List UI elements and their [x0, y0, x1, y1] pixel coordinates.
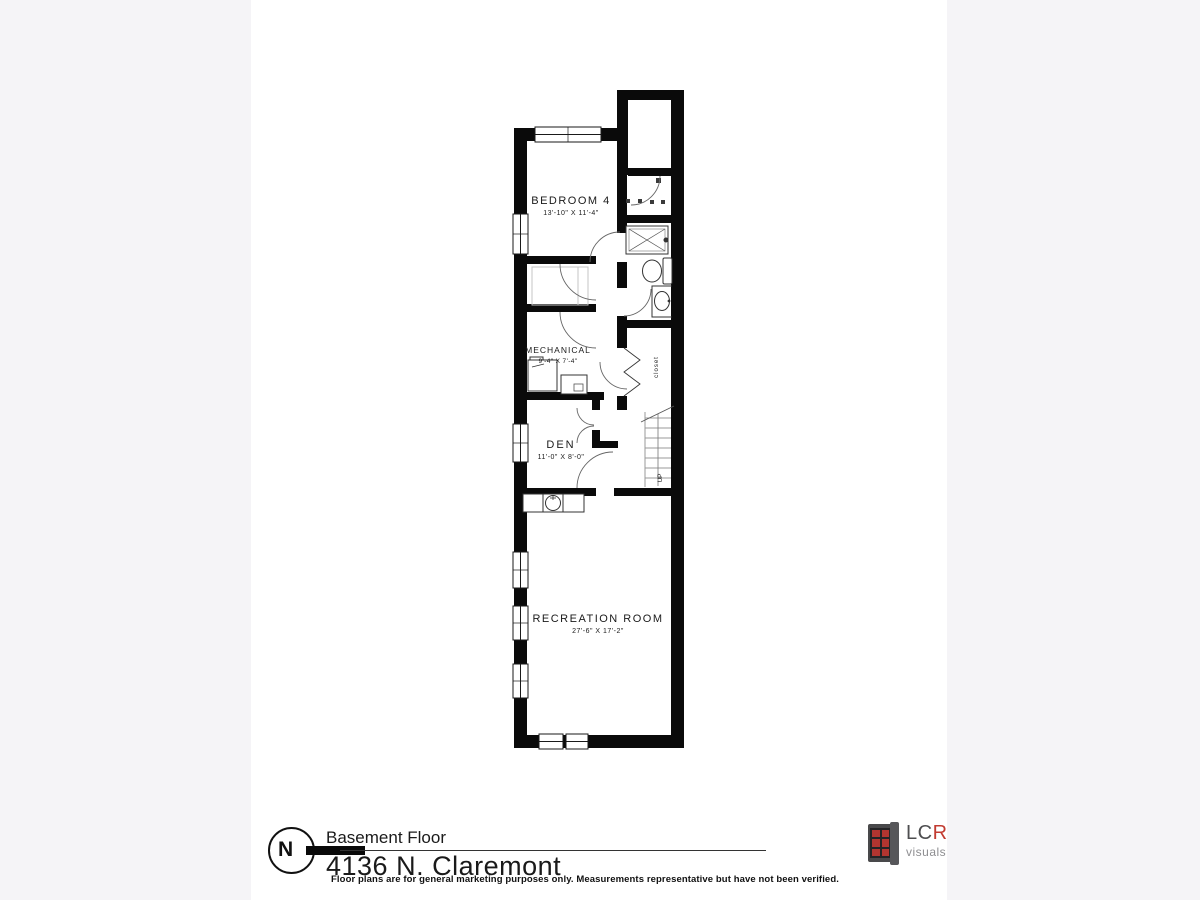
walls [514, 90, 684, 748]
window-left-rec-1 [513, 552, 528, 588]
window-left-rec-3 [513, 664, 528, 698]
left-margin-panel [0, 0, 251, 900]
room-dims-bedroom4: 13'-10" X 11'-4" [543, 210, 599, 217]
logo-brand-suffix: R [933, 822, 948, 844]
room-dims-den: 11'-0" X 8'-0" [538, 454, 585, 461]
right-margin-panel [947, 0, 1200, 900]
shower-head [664, 238, 668, 242]
door-mechanical [560, 312, 596, 348]
room-label-den: DEN [546, 439, 575, 451]
room-label-mechanical: MECHANICAL [525, 345, 591, 355]
stairs-up-label: UP [657, 473, 664, 482]
north-letter: N [278, 838, 293, 862]
storage-shelf [532, 267, 588, 305]
door-bathroom [624, 289, 651, 316]
window-left-den [513, 424, 528, 462]
toilet [643, 258, 673, 284]
door-den-closet-lower [577, 426, 594, 443]
shower [626, 226, 668, 254]
logo-tagline: visuals [906, 845, 946, 859]
door-den-closet-upper [577, 408, 594, 425]
door-hall-closet [600, 362, 627, 389]
room-label-recreation: RECREATION ROOM [532, 613, 663, 625]
disclaimer-text: Floor plans are for general marketing pu… [185, 874, 985, 885]
logo-brand-text: LCR [906, 822, 948, 845]
laundry-sink-counter [523, 494, 584, 512]
window-bottom-rec-2 [566, 734, 588, 749]
floor-name-label: Basement Floor [326, 828, 446, 848]
window-bottom-rec-1 [539, 734, 563, 749]
lcr-visuals-logo: LCR visuals [866, 820, 956, 870]
door-top-closet [631, 176, 660, 205]
room-label-bedroom4: BEDROOM 4 [531, 195, 611, 207]
floor-plan-drawing: BEDROOM 4 13'-10" X 11'-4" MECHANICAL 9'… [505, 85, 695, 755]
window-top-bedroom [535, 127, 601, 142]
window-left-rec-2 [513, 606, 528, 640]
logo-window-icon [870, 828, 891, 858]
page: BEDROOM 4 13'-10" X 11'-4" MECHANICAL 9'… [0, 0, 1200, 900]
room-dims-mechanical: 9'-4" X 7'-4" [538, 358, 577, 365]
window-left-bedroom [513, 214, 528, 254]
room-dims-recreation: 27'-6" X 17'-2" [572, 628, 624, 635]
logo-bar-icon [890, 822, 899, 865]
water-heater [561, 375, 587, 394]
logo-brand-prefix: LC [906, 822, 933, 844]
closet-label: closet [654, 356, 660, 378]
bathroom-sink [652, 286, 672, 317]
